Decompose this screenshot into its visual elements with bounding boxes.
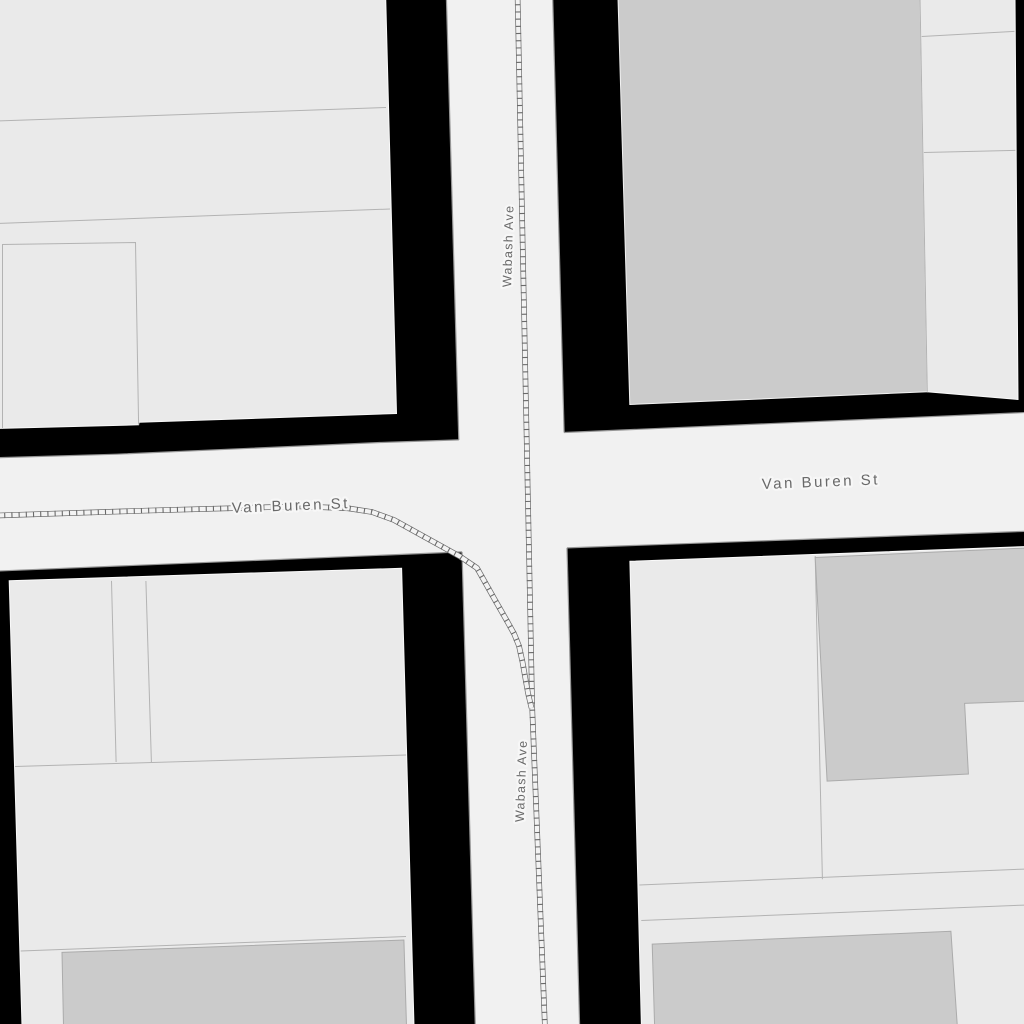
svg-text:Wabash Ave: Wabash Ave — [500, 204, 516, 287]
